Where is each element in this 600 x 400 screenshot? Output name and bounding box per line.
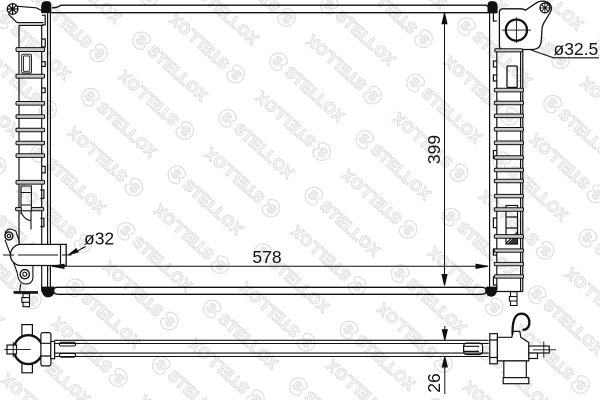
svg-text:26: 26 xyxy=(424,373,444,392)
svg-text:578: 578 xyxy=(252,247,281,267)
svg-text:ø32.5: ø32.5 xyxy=(554,39,599,59)
svg-text:399: 399 xyxy=(424,135,444,164)
svg-text:ø32: ø32 xyxy=(84,229,114,249)
